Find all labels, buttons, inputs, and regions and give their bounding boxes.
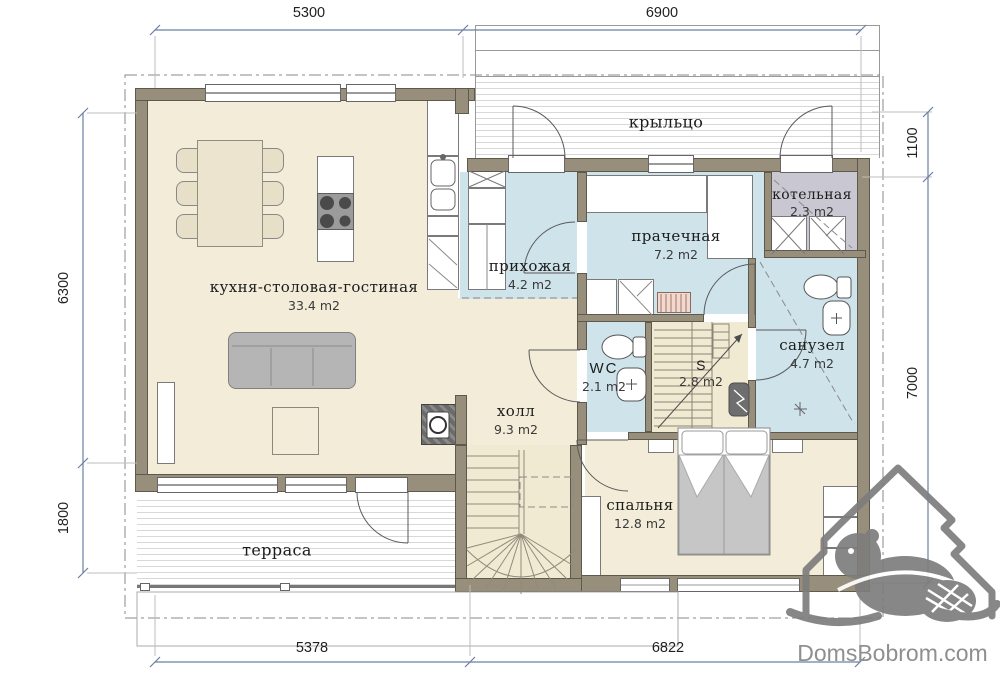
door-casing-porch-entry: [508, 155, 565, 173]
room-label-terrace: терраса: [242, 541, 312, 562]
wall-boiler-left: [764, 172, 772, 258]
wall-entry-divider: [577, 402, 587, 445]
room-label-kitchen: кухня-столовая-гостиная 33.4 m2: [210, 278, 419, 314]
dim-right-upper: 1100: [905, 127, 921, 158]
wall-boiler-bottom: [764, 250, 866, 258]
dim-left-lower: 1800: [56, 502, 72, 534]
wall-left-outer: [135, 88, 148, 492]
terrace-post: [280, 583, 290, 591]
kitchen-counter: [427, 216, 459, 236]
room-label-porch: крыльцо: [629, 113, 704, 134]
kitchen-appliance-cabinet: [427, 236, 459, 290]
chair: [176, 148, 198, 173]
room-label-wc: WC 2.1 m2: [582, 359, 626, 395]
wall-stair-bottom: [455, 578, 582, 592]
terrace-post: [140, 583, 150, 591]
entry-closet-top: [468, 170, 506, 188]
stove: [317, 193, 354, 230]
wall-bathroom-left: [748, 380, 756, 432]
dim-right-lower: 7000: [905, 367, 921, 399]
fireplace: [421, 404, 459, 445]
wall-entry-divider: [577, 172, 587, 222]
wall-fireplace-stub: [455, 395, 467, 445]
door-casing-porch-laundry: [780, 155, 833, 173]
dining-table: [197, 140, 263, 247]
window-bedroom-2: [677, 578, 800, 592]
coffee-table: [272, 407, 319, 455]
washing-machine: [583, 279, 617, 317]
wall-stair-right: [570, 445, 582, 590]
dim-top-right: 6900: [646, 5, 678, 21]
dresser: [823, 517, 860, 548]
chair: [176, 181, 198, 206]
room-label-bedroom: спальня 12.8 m2: [606, 496, 673, 532]
dresser: [823, 486, 860, 517]
wall-wc-stairs: [645, 322, 652, 432]
wall-kitchen-stub: [455, 88, 469, 114]
room-label-hall: холл 9.3 m2: [494, 402, 538, 438]
room-label-stairs: S 2.8 m2: [679, 356, 723, 390]
terrace-bottom-edge: [137, 585, 457, 588]
porch-roof-band-line: [475, 50, 880, 51]
window-kitchen-1: [205, 84, 341, 102]
window-bedroom-1: [620, 578, 670, 592]
porch-left-edge: [475, 25, 476, 158]
watermark-text: DomsBobrom.com: [785, 640, 1000, 667]
dim-bottom-right: 6822: [652, 640, 684, 656]
porch-right-edge: [879, 25, 880, 158]
chair: [262, 181, 284, 206]
wall-bedroom-top: [628, 432, 858, 440]
dim-top-left: 5300: [293, 5, 325, 21]
window-porch: [648, 155, 694, 173]
window-living-1: [157, 477, 278, 493]
room-label-bathroom: санузел 4.7 m2: [779, 336, 845, 372]
radiator: [657, 292, 691, 313]
door-casing-terrace: [355, 477, 408, 493]
kitchen-sink-unit: [427, 156, 459, 216]
tv-stand: [157, 382, 175, 464]
bedroom-wardrobe: [581, 496, 601, 578]
room-label-entry: прихожая 4.2 m2: [489, 257, 572, 293]
wall-laundry-south: [577, 314, 704, 322]
chair: [262, 148, 284, 173]
laundry-counter: [585, 175, 707, 213]
room-label-laundry: прачечная 7.2 m2: [631, 227, 720, 263]
chair: [262, 214, 284, 239]
wall-stair-left: [455, 445, 467, 590]
dim-bottom-left: 5378: [296, 640, 328, 656]
window-kitchen-2: [346, 84, 396, 102]
dim-left-upper: 6300: [56, 272, 72, 304]
wall-entry-divider: [577, 273, 587, 350]
sofa: [228, 332, 356, 389]
window-living-2: [285, 477, 347, 493]
stair-room-floor: [460, 445, 570, 578]
wall-bathroom-left: [748, 258, 756, 328]
floor-plan: крыльцо котельная 2.3 m2 прачечная 7.2 m…: [0, 0, 1000, 678]
chair: [176, 214, 198, 239]
dryer-machine: [618, 279, 654, 317]
wall-right-outer: [857, 158, 870, 583]
dresser: [823, 548, 860, 578]
room-label-boiler: котельная 2.3 m2: [772, 186, 852, 220]
porch-roof-band: [475, 25, 880, 77]
entry-closet: [468, 188, 506, 224]
